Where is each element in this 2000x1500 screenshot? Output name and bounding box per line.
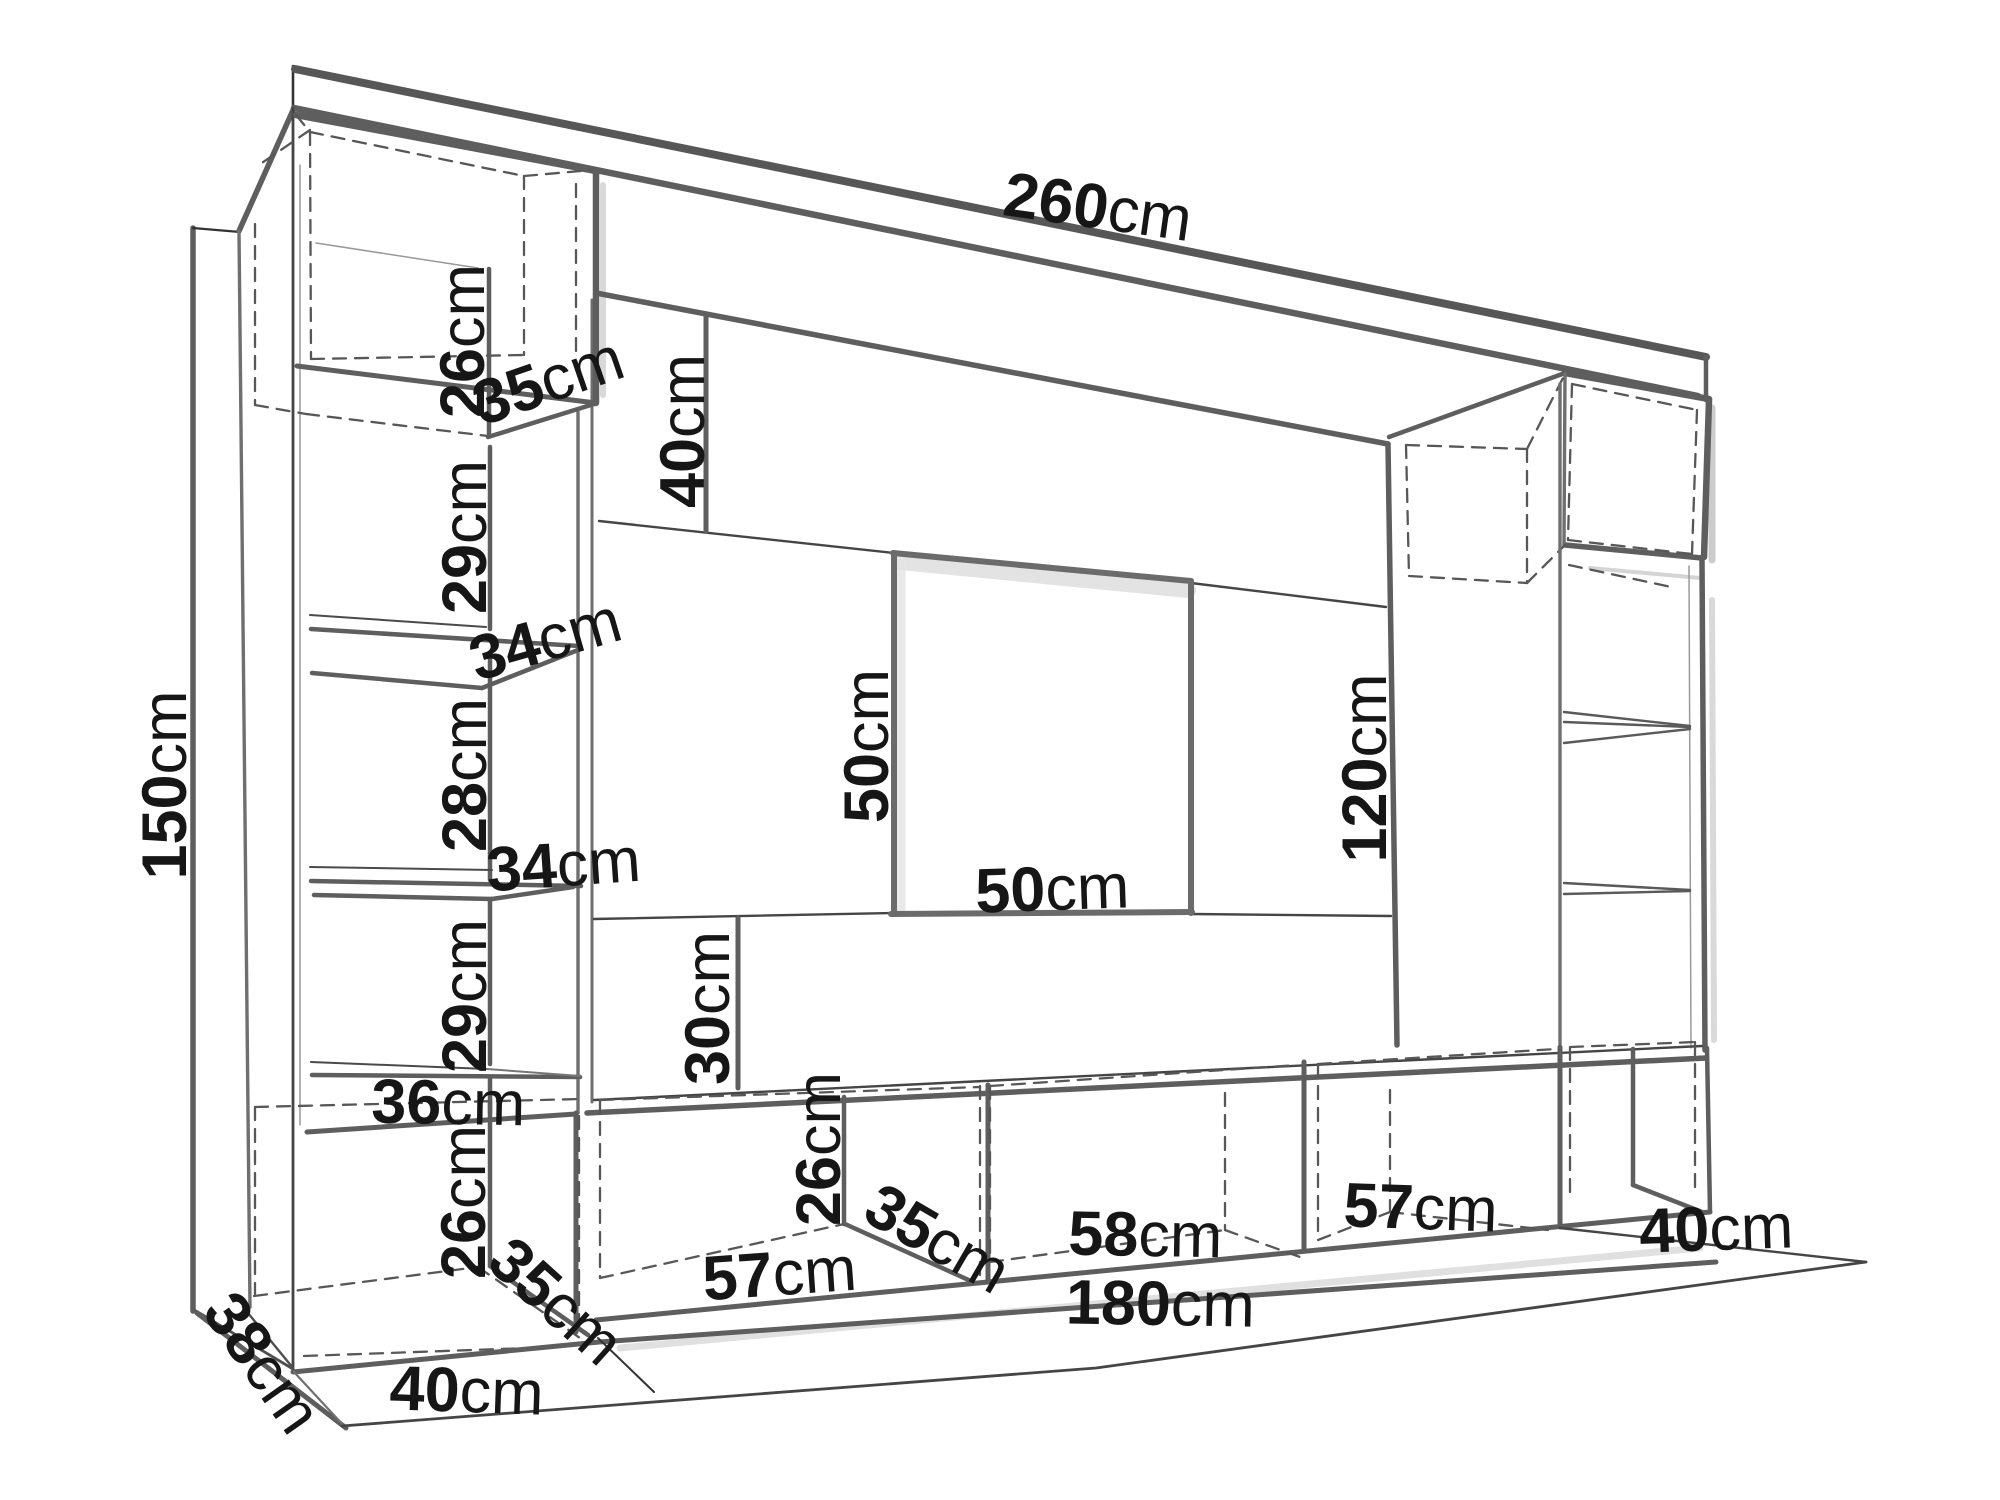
svg-text:40cm: 40cm (1638, 1191, 1794, 1266)
svg-text:50cm: 50cm (832, 669, 902, 823)
svg-text:150cm: 150cm (130, 690, 200, 879)
svg-text:28cm: 28cm (430, 698, 500, 852)
svg-text:26cm: 26cm (429, 1125, 499, 1279)
svg-text:40cm: 40cm (648, 354, 718, 508)
svg-text:29cm: 29cm (430, 919, 500, 1073)
svg-text:120cm: 120cm (1330, 673, 1400, 862)
svg-text:29cm: 29cm (430, 460, 500, 614)
svg-text:58cm: 58cm (1068, 1199, 1223, 1272)
svg-text:26cm: 26cm (784, 1072, 854, 1226)
svg-text:40cm: 40cm (389, 1353, 545, 1428)
svg-text:34cm: 34cm (484, 825, 643, 906)
svg-text:57cm: 57cm (700, 1234, 859, 1315)
svg-text:30cm: 30cm (673, 931, 743, 1085)
svg-text:50cm: 50cm (974, 851, 1130, 926)
svg-text:57cm: 57cm (1343, 1170, 1499, 1245)
svg-text:180cm: 180cm (1065, 1267, 1255, 1340)
